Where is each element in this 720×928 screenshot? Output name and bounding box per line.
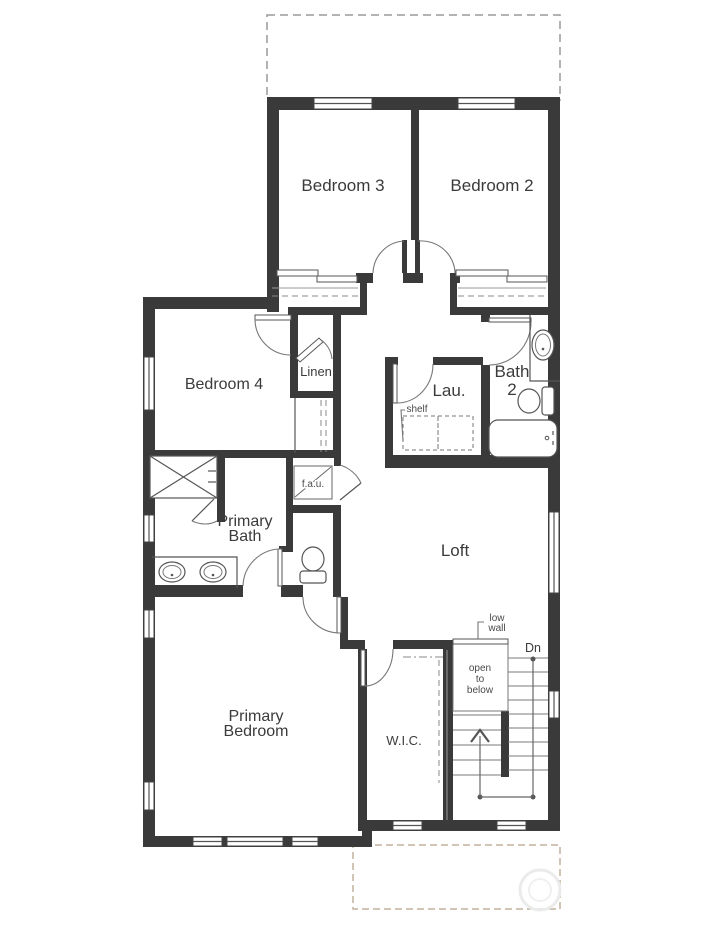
window [314,98,372,109]
roof-outline-top [267,15,560,100]
primary-shower-icon [150,456,217,524]
fau-door [340,465,361,500]
window [144,515,154,542]
linen-door [296,338,332,362]
bedroom4-label: Bedroom 4 [185,376,263,393]
primary-toilet-icon [300,547,326,583]
window [193,837,222,846]
primary-vanity-icon [152,557,237,588]
bedroom3-door [373,241,404,273]
window [227,837,283,846]
sink-icon [159,562,185,582]
window [549,691,559,718]
open-to-below-label-line1: open [469,663,491,674]
bath2-label-line1: Bath [495,362,530,381]
loft-label: Loft [441,541,470,560]
bath2-door [489,318,531,365]
roof-outline-bottom [353,845,560,909]
bedroom3-label: Bedroom 3 [301,176,384,195]
window [144,357,154,410]
bath2-toilet-icon [518,387,554,415]
window [393,821,422,830]
bedroom4-door [255,315,291,355]
washer-dryer-icon [403,416,473,450]
window [144,610,154,638]
sink-icon [200,562,226,582]
window [292,837,318,846]
primary-bedroom-label-line2: Bedroom [224,723,289,740]
open-to-below-label-line3: below [467,685,494,696]
closet-rods [272,288,546,296]
primary-bath-door [243,549,282,586]
wic-label: W.I.C. [386,733,421,748]
sink-icon [532,330,554,360]
bedroom2-label: Bedroom 2 [450,176,533,195]
watermark [520,870,560,910]
primary-bedroom-door [303,597,341,633]
floor-plan: Bedroom 3 Bedroom 2 Bedroom 4 Linen Lau.… [0,0,720,928]
window [144,782,154,810]
low-wall-leader [478,622,484,639]
laundry-label: Lau. [432,381,465,400]
linen-label: Linen [300,364,332,379]
shelf-label: shelf [406,404,427,415]
low-wall-label-line2: wall [487,623,505,634]
bath2-tub-icon [489,420,557,457]
window [458,98,515,109]
bath2-label-line2: 2 [507,380,516,399]
primary-bath-label-line2: Bath [229,528,262,545]
open-to-below-label-line2: to [476,674,485,685]
down-label: Dn [525,641,541,655]
window [497,821,526,830]
hall-cabinet [295,398,326,453]
bedroom2-door [418,241,455,273]
fau-label: f.a.u. [302,479,324,490]
window [549,512,559,593]
laundry-door [393,364,433,403]
stair-treads [453,658,548,775]
